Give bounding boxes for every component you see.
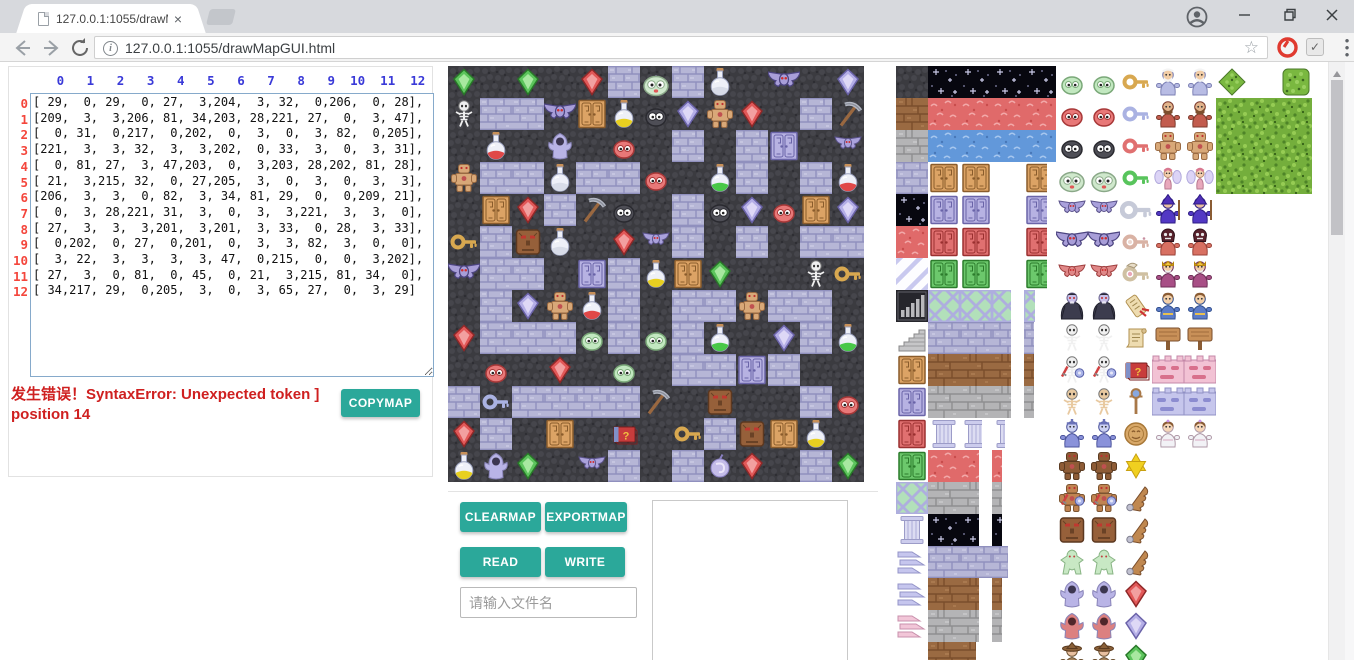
map-tile-blue-gem[interactable] <box>832 66 864 98</box>
map-tile-green-slime[interactable] <box>576 322 608 354</box>
map-tile-brick-path[interactable] <box>704 290 736 322</box>
map-tile-dark-floor[interactable] <box>576 354 608 386</box>
map-tile-brick-path[interactable] <box>576 162 608 194</box>
tileset-dirt[interactable] <box>1024 354 1034 386</box>
tileset-tree[interactable] <box>1216 130 1248 162</box>
map-tile-magic-book[interactable]: ? <box>608 418 640 450</box>
tileset-golemwar[interactable] <box>1056 482 1088 514</box>
map-tile-blue-gem[interactable] <box>832 194 864 226</box>
map-tile-red-gem[interactable] <box>608 226 640 258</box>
map-tile-green-gem[interactable] <box>832 450 864 482</box>
map-tile-dark-floor[interactable] <box>832 418 864 450</box>
map-tile-blue-door[interactable] <box>736 354 768 386</box>
tileset-stone[interactable] <box>960 482 979 514</box>
tileset-k_red[interactable] <box>1120 130 1152 162</box>
map-tile-red-slime[interactable] <box>832 386 864 418</box>
tileset-bush[interactable] <box>1216 66 1248 98</box>
close-icon[interactable] <box>1310 0 1354 30</box>
map-tile-brick-path[interactable] <box>480 226 512 258</box>
tileset-redbg[interactable] <box>960 98 992 130</box>
map-tile-red-gem[interactable] <box>544 354 576 386</box>
tileset-skelwar[interactable] <box>1056 354 1088 386</box>
map-tile-brick-path[interactable] <box>576 386 608 418</box>
map-tile-red-gem[interactable] <box>576 66 608 98</box>
map-tile-brick-path[interactable] <box>672 194 704 226</box>
profile-icon[interactable] <box>1186 6 1208 28</box>
tileset-scroll[interactable] <box>1120 322 1152 354</box>
tileset-pillar[interactable] <box>992 418 1005 450</box>
filename-input[interactable] <box>460 587 637 618</box>
map-tile-green-slime[interactable] <box>640 322 672 354</box>
map-tile-dark-floor[interactable] <box>800 66 832 98</box>
tileset-k_gry[interactable] <box>1120 194 1152 226</box>
tileset-d_lav[interactable] <box>928 194 960 226</box>
map-tile-brick-path[interactable] <box>800 322 832 354</box>
tileset-stone[interactable] <box>928 386 960 418</box>
tileset-princess[interactable] <box>1184 418 1216 450</box>
tileset-redbg[interactable] <box>1024 98 1056 130</box>
tileset-d_grn[interactable] <box>896 450 928 482</box>
map-tile-pickaxe[interactable] <box>576 194 608 226</box>
map-tile-white-potion[interactable] <box>544 226 576 258</box>
tileset-bgolem[interactable] <box>1056 450 1088 482</box>
map-tile-dark-floor[interactable] <box>736 322 768 354</box>
map-tile-dark-floor[interactable] <box>736 386 768 418</box>
map-tile-red-gem[interactable] <box>736 98 768 130</box>
tileset-dirt[interactable] <box>928 354 960 386</box>
tileset-water[interactable] <box>992 130 1024 162</box>
tileset-fighter[interactable] <box>1152 130 1184 162</box>
tileset-tree[interactable] <box>1280 130 1312 162</box>
tileset-k_wing[interactable] <box>1120 258 1152 290</box>
exportmap-button[interactable]: EXPORTMAP <box>545 502 627 532</box>
tileset-tree[interactable] <box>1216 98 1248 130</box>
map-tile-dark-floor[interactable] <box>832 290 864 322</box>
map-tile-dark-floor[interactable] <box>704 226 736 258</box>
tileset-priest[interactable] <box>1152 226 1184 258</box>
tileset-brick[interactable] <box>896 162 928 194</box>
tileset-stonef[interactable] <box>1088 514 1120 546</box>
tileset-medal[interactable] <box>1120 418 1152 450</box>
tileset-gem_r[interactable] <box>1120 578 1152 610</box>
map-tile-brick-path[interactable] <box>512 98 544 130</box>
map-tile-green-gem[interactable] <box>448 66 480 98</box>
tileset-oldman[interactable] <box>1152 66 1184 98</box>
tileset-staff[interactable] <box>1120 386 1152 418</box>
tileset-starbg[interactable] <box>928 66 960 98</box>
tileset-jelly[interactable] <box>1088 546 1120 578</box>
tileset-wing[interactable] <box>1120 482 1152 514</box>
tileset-starbg[interactable] <box>992 66 1024 98</box>
tileset-water[interactable] <box>960 130 992 162</box>
tileset-d_grn[interactable] <box>1024 258 1047 290</box>
tileset-stone[interactable] <box>928 482 960 514</box>
tileset-bgolem[interactable] <box>1088 450 1120 482</box>
map-tile-yellow-door[interactable] <box>544 418 576 450</box>
menu-dots-icon[interactable]: ••• <box>1341 37 1353 59</box>
tileset-floor[interactable] <box>896 66 928 98</box>
map-tile-dark-floor[interactable] <box>512 354 544 386</box>
tileset-palette[interactable]: ? <box>896 66 1312 660</box>
tileset-king[interactable] <box>1152 258 1184 290</box>
back-arrow-icon[interactable] <box>10 36 34 60</box>
map-tile-red-slime[interactable] <box>608 130 640 162</box>
map-tile-dark-floor[interactable] <box>576 130 608 162</box>
map-tile-brick-path[interactable] <box>608 322 640 354</box>
tileset-skelwar[interactable] <box>1088 354 1120 386</box>
tileset-priest[interactable] <box>1184 226 1216 258</box>
tileset-wallpink[interactable] <box>1184 354 1216 386</box>
map-tile-blue-door[interactable] <box>768 130 800 162</box>
map-tile-brick-path[interactable] <box>672 130 704 162</box>
tileset-stone[interactable] <box>960 386 992 418</box>
copymap-button[interactable]: COPYMAP <box>341 389 420 417</box>
tileset-prince[interactable] <box>1152 290 1184 322</box>
map-tile-yellow-door[interactable] <box>480 194 512 226</box>
map-tile-green-slime[interactable] <box>608 354 640 386</box>
map-tile-brick-path[interactable] <box>608 66 640 98</box>
tileset-jelly[interactable] <box>1056 546 1088 578</box>
map-tile-dark-floor[interactable] <box>448 354 480 386</box>
tileset-redbg[interactable] <box>928 450 960 482</box>
map-tile-green-gem[interactable] <box>512 450 544 482</box>
map-tile-yellow-key[interactable] <box>832 258 864 290</box>
tileset-brick[interactable] <box>928 546 960 578</box>
tileset-wing[interactable] <box>1120 514 1152 546</box>
export-output-box[interactable] <box>652 500 848 660</box>
tileset-stone[interactable] <box>928 610 960 642</box>
tileset-lattice[interactable] <box>928 290 960 322</box>
map-tile-dark-floor[interactable] <box>800 130 832 162</box>
tileset-skel[interactable] <box>1088 322 1120 354</box>
map-tile-yellow-door[interactable] <box>800 194 832 226</box>
map-tile-rock-warrior[interactable] <box>544 290 576 322</box>
tileset-redbg[interactable] <box>992 98 1024 130</box>
map-tile-dark-floor[interactable] <box>672 162 704 194</box>
map-tile-yellow-key[interactable] <box>448 226 480 258</box>
map-tile-big-bat[interactable] <box>448 258 480 290</box>
map-tile-brick-path[interactable] <box>512 258 544 290</box>
map-tile-brick-path[interactable] <box>608 162 640 194</box>
map-tile-brick-path[interactable] <box>480 258 512 290</box>
map-tile-dark-floor[interactable] <box>672 386 704 418</box>
map-tile-brick-path[interactable] <box>448 386 480 418</box>
tileset-wingp[interactable] <box>896 610 928 642</box>
tileset-brick[interactable] <box>992 546 1008 578</box>
checkmark-extension-icon[interactable]: ✓ <box>1306 38 1324 56</box>
tileset-slime_g[interactable] <box>1088 66 1120 98</box>
tileset-slime_k[interactable] <box>1088 130 1120 162</box>
tileset-gem_b[interactable] <box>1120 610 1152 642</box>
map-tile-skeleton[interactable] <box>448 98 480 130</box>
tileset-pillar[interactable] <box>896 514 928 546</box>
map-tile-dark-floor[interactable] <box>512 418 544 450</box>
tileset-skel[interactable] <box>1056 322 1088 354</box>
tileset-walllav[interactable] <box>1184 386 1216 418</box>
tileset-dirt[interactable] <box>992 578 1002 610</box>
tileset-fairy[interactable] <box>1152 162 1184 194</box>
tileset-stonef[interactable] <box>1056 514 1088 546</box>
tileset-lattice[interactable] <box>992 290 1011 322</box>
map-tile-brick-path[interactable] <box>800 226 832 258</box>
tileset-stone[interactable] <box>896 130 928 162</box>
map-tile-rock-warrior[interactable] <box>736 290 768 322</box>
tileset-wallpink[interactable] <box>1152 354 1184 386</box>
map-tile-brick-path[interactable] <box>672 226 704 258</box>
map-tile-ghost-priest[interactable] <box>544 130 576 162</box>
map-tile-green-gem[interactable] <box>704 258 736 290</box>
tileset-star_i[interactable] <box>1120 450 1152 482</box>
minimize-icon[interactable] <box>1222 0 1266 30</box>
tileset-dirt[interactable] <box>960 354 992 386</box>
tileset-d_red[interactable] <box>960 226 992 258</box>
map-tile-dark-floor[interactable] <box>448 194 480 226</box>
map-tile-blue-key[interactable] <box>480 386 512 418</box>
tileset-d_red[interactable] <box>896 418 928 450</box>
map-tile-yellow-potion[interactable] <box>640 258 672 290</box>
tileset-d_red[interactable] <box>1024 226 1047 258</box>
tileset-slime_k[interactable] <box>1056 130 1088 162</box>
tileset-dirt[interactable] <box>992 354 1011 386</box>
map-tile-green-gem[interactable] <box>512 66 544 98</box>
map-tile-stone-golem[interactable] <box>512 226 544 258</box>
tileset-dwarf[interactable] <box>1184 98 1216 130</box>
tileset-bigbat[interactable] <box>1056 226 1088 258</box>
clearmap-button[interactable]: CLEARMAP <box>460 502 541 532</box>
map-tile-bat[interactable] <box>576 450 608 482</box>
map-tile-dark-floor[interactable] <box>640 354 672 386</box>
map-tile-magic-orb[interactable] <box>704 450 736 482</box>
map-tile-big-bat[interactable] <box>544 98 576 130</box>
tileset-redbg[interactable] <box>960 450 979 482</box>
browser-tab[interactable]: 127.0.0.1:1055/drawMa × <box>30 4 192 33</box>
map-tile-dark-floor[interactable] <box>768 162 800 194</box>
map-tile-blue-gem[interactable] <box>672 98 704 130</box>
map-tile-brick-path[interactable] <box>608 258 640 290</box>
map-tile-blue-gem[interactable] <box>768 322 800 354</box>
tileset-d_lav[interactable] <box>896 386 928 418</box>
tileset-wing[interactable] <box>1120 546 1152 578</box>
tileset-dirt[interactable] <box>960 578 979 610</box>
map-tile-brick-path[interactable] <box>736 130 768 162</box>
map-tile-yellow-door[interactable] <box>768 418 800 450</box>
tileset-k_blu[interactable] <box>1120 98 1152 130</box>
write-button[interactable]: WRITE <box>545 547 625 577</box>
map-tile-red-slime[interactable] <box>768 194 800 226</box>
tileset-starbg[interactable] <box>960 66 992 98</box>
tileset-golemwar[interactable] <box>1088 482 1120 514</box>
tileset-knight[interactable] <box>1088 418 1120 450</box>
tileset-king[interactable] <box>1184 258 1216 290</box>
tileset-brick[interactable] <box>960 546 992 578</box>
map-tile-dark-floor[interactable] <box>768 258 800 290</box>
map-tile-brick-path[interactable] <box>544 322 576 354</box>
tileset-hatwiz[interactable] <box>1088 642 1120 660</box>
map-tile-dark-floor[interactable] <box>448 290 480 322</box>
map-tile-blue-gem[interactable] <box>512 290 544 322</box>
map-tile-blue-door[interactable] <box>576 258 608 290</box>
forward-arrow-icon[interactable] <box>40 36 64 60</box>
tileset-brick[interactable] <box>992 322 1011 354</box>
url-text[interactable]: 127.0.0.1:1055/drawMapGUI.html <box>125 40 335 56</box>
tileset-walllav[interactable] <box>1152 386 1184 418</box>
map-tile-dark-floor[interactable] <box>736 258 768 290</box>
tileset-water[interactable] <box>928 130 960 162</box>
map-tile-brick-path[interactable] <box>512 162 544 194</box>
map-tile-yellow-door[interactable] <box>672 258 704 290</box>
map-tile-dark-floor[interactable] <box>768 450 800 482</box>
tileset-wizard[interactable] <box>1184 194 1216 226</box>
tileset-stairs[interactable] <box>896 322 928 354</box>
map-tile-brick-path[interactable] <box>672 322 704 354</box>
tileset-redbg[interactable] <box>992 450 1002 482</box>
map-tile-dark-floor[interactable] <box>832 354 864 386</box>
map-tile-brick-path[interactable] <box>512 322 544 354</box>
tileset-dirt[interactable] <box>896 98 928 130</box>
tileset-sign[interactable] <box>1152 322 1184 354</box>
map-tile-dark-floor[interactable] <box>736 66 768 98</box>
map-tile-brick-path[interactable] <box>480 98 512 130</box>
map-tile-dark-floor[interactable] <box>704 130 736 162</box>
tileset-d_red[interactable] <box>928 226 960 258</box>
tileset-tree[interactable] <box>1248 162 1280 194</box>
map-tile-black-slime[interactable] <box>608 194 640 226</box>
tileset-bars[interactable] <box>896 290 928 322</box>
tileset-starbg[interactable] <box>928 514 960 546</box>
tileset-bat[interactable] <box>1056 194 1088 226</box>
tileset-starbg[interactable] <box>896 194 928 226</box>
restore-icon[interactable] <box>1266 0 1310 30</box>
tileset-stone[interactable] <box>1024 386 1034 418</box>
tileset-k_grn[interactable] <box>1120 162 1152 194</box>
map-tile-yellow-key[interactable] <box>672 418 704 450</box>
tileset-starbg[interactable] <box>1024 66 1056 98</box>
tab-close-icon[interactable]: × <box>170 11 186 27</box>
tileset-lattice[interactable] <box>1024 290 1035 322</box>
tileset-tanskel[interactable] <box>1088 386 1120 418</box>
map-tile-brick-path[interactable] <box>672 290 704 322</box>
map-tile-green-potion[interactable] <box>704 322 736 354</box>
tileset-wingl[interactable] <box>896 546 928 578</box>
tileset-redbg[interactable] <box>928 98 960 130</box>
bookmark-star-icon[interactable]: ☆ <box>1244 38 1259 58</box>
tileset-scrollred[interactable] <box>1120 290 1152 322</box>
tileset-lattice[interactable] <box>896 482 928 514</box>
map-tile-dark-floor[interactable] <box>640 290 672 322</box>
tileset-starbg[interactable] <box>960 514 979 546</box>
tileset-k_orn[interactable] <box>1120 226 1152 258</box>
tileset-tree[interactable] <box>1248 130 1280 162</box>
tileset-redbg[interactable] <box>896 226 928 258</box>
tileset-oldman[interactable] <box>1184 66 1216 98</box>
scrollbar-thumb[interactable] <box>1331 80 1343 235</box>
map-tile-slime-king[interactable] <box>640 66 672 98</box>
tileset-princess[interactable] <box>1152 418 1184 450</box>
read-button[interactable]: READ <box>460 547 541 577</box>
tileset-slime_big[interactable] <box>1088 162 1120 194</box>
map-tile-red-gem[interactable] <box>512 194 544 226</box>
map-tile-brick-path[interactable] <box>512 386 544 418</box>
tileset-gem_g[interactable] <box>1120 642 1152 660</box>
map-tile-black-slime[interactable] <box>640 98 672 130</box>
map-tile-red-gem[interactable] <box>448 418 480 450</box>
tileset-dwarf[interactable] <box>1152 98 1184 130</box>
tileset-dirt[interactable] <box>928 578 960 610</box>
tileset-brick[interactable] <box>1024 322 1034 354</box>
tileset-tree[interactable] <box>1280 162 1312 194</box>
map-tile-brick-path[interactable] <box>832 226 864 258</box>
tileset-dirt[interactable] <box>928 642 960 660</box>
tileset-ghostred[interactable] <box>1056 610 1088 642</box>
tileset-starbg[interactable] <box>992 514 1002 546</box>
tileset-fairy[interactable] <box>1184 162 1216 194</box>
tileset-hatwiz[interactable] <box>1056 642 1088 660</box>
map-tile-brick-path[interactable] <box>480 322 512 354</box>
tileset-k_yel[interactable] <box>1120 66 1152 98</box>
tileset-sqtree[interactable] <box>1280 66 1312 98</box>
map-tile-brick-path[interactable] <box>768 290 800 322</box>
map-tile-white-potion[interactable] <box>704 66 736 98</box>
map-tile-dark-floor[interactable] <box>512 130 544 162</box>
map-tile-brick-path[interactable] <box>480 418 512 450</box>
tileset-d_grn[interactable] <box>960 258 992 290</box>
tileset-brick[interactable] <box>960 322 992 354</box>
tileset-water[interactable] <box>1024 130 1056 162</box>
tileset-brick[interactable] <box>928 322 960 354</box>
tileset-tree[interactable] <box>1248 98 1280 130</box>
map-tile-brick-path[interactable] <box>608 450 640 482</box>
map-tile-stone-golem[interactable] <box>736 418 768 450</box>
tileset-d_tan[interactable] <box>960 162 992 194</box>
tileset-sign[interactable] <box>1184 322 1216 354</box>
tileset-d_tan[interactable] <box>1024 162 1047 194</box>
map-tile-brick-path[interactable] <box>672 450 704 482</box>
tileset-redbat[interactable] <box>1088 258 1120 290</box>
map-tile-bat[interactable] <box>640 226 672 258</box>
map-tile-dark-floor[interactable] <box>800 354 832 386</box>
tileset-pillar[interactable] <box>928 418 960 450</box>
map-canvas[interactable]: ? <box>448 66 864 482</box>
map-tile-brick-path[interactable] <box>800 450 832 482</box>
tileset-ghostred[interactable] <box>1088 610 1120 642</box>
tileset-fighter[interactable] <box>1184 130 1216 162</box>
tileset-diag[interactable] <box>896 258 928 290</box>
tileset-vampire[interactable] <box>1056 290 1088 322</box>
matrix-textarea[interactable] <box>30 93 434 377</box>
adblock-hand-icon[interactable] <box>1276 36 1299 59</box>
tileset-wizard[interactable] <box>1152 194 1184 226</box>
map-tile-rock-warrior[interactable] <box>704 98 736 130</box>
map-tile-bat[interactable] <box>832 130 864 162</box>
tileset-ghost[interactable] <box>1088 578 1120 610</box>
tileset-slime_g[interactable] <box>1056 66 1088 98</box>
map-tile-green-potion[interactable] <box>704 162 736 194</box>
map-tile-skeleton[interactable] <box>800 258 832 290</box>
map-tile-stone-golem[interactable] <box>704 386 736 418</box>
map-tile-dark-floor[interactable] <box>448 130 480 162</box>
tileset-bigbat[interactable] <box>1088 226 1120 258</box>
map-tile-yellow-potion[interactable] <box>800 418 832 450</box>
map-tile-red-gem[interactable] <box>736 450 768 482</box>
map-tile-dark-floor[interactable] <box>640 418 672 450</box>
map-tile-dark-floor[interactable] <box>576 418 608 450</box>
map-tile-dark-floor[interactable] <box>544 450 576 482</box>
map-tile-red-slime[interactable] <box>480 354 512 386</box>
map-tile-dark-floor[interactable] <box>480 66 512 98</box>
map-tile-brick-path[interactable] <box>704 354 736 386</box>
new-tab-button[interactable] <box>206 9 236 25</box>
map-tile-brick-path[interactable] <box>544 194 576 226</box>
